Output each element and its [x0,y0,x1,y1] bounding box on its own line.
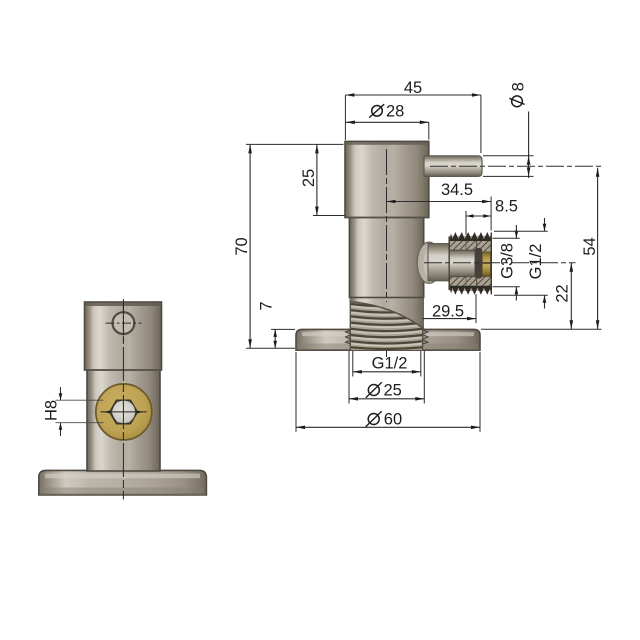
svg-text:G1/2: G1/2 [372,355,408,373]
svg-text:28: 28 [386,103,404,121]
svg-text:7: 7 [258,301,276,310]
svg-text:25: 25 [300,169,318,187]
svg-text:8.5: 8.5 [495,198,518,216]
svg-text:54: 54 [581,237,599,255]
svg-text:G1/2: G1/2 [527,244,545,280]
svg-text:22: 22 [554,284,572,302]
svg-text:34.5: 34.5 [441,181,473,199]
svg-text:25: 25 [384,381,402,399]
svg-text:8: 8 [509,82,527,91]
svg-text:29.5: 29.5 [432,303,464,321]
svg-text:45: 45 [404,79,422,97]
svg-text:G3/8: G3/8 [499,243,517,279]
svg-text:60: 60 [384,410,402,428]
svg-text:H8: H8 [43,400,61,421]
svg-text:70: 70 [233,237,251,255]
